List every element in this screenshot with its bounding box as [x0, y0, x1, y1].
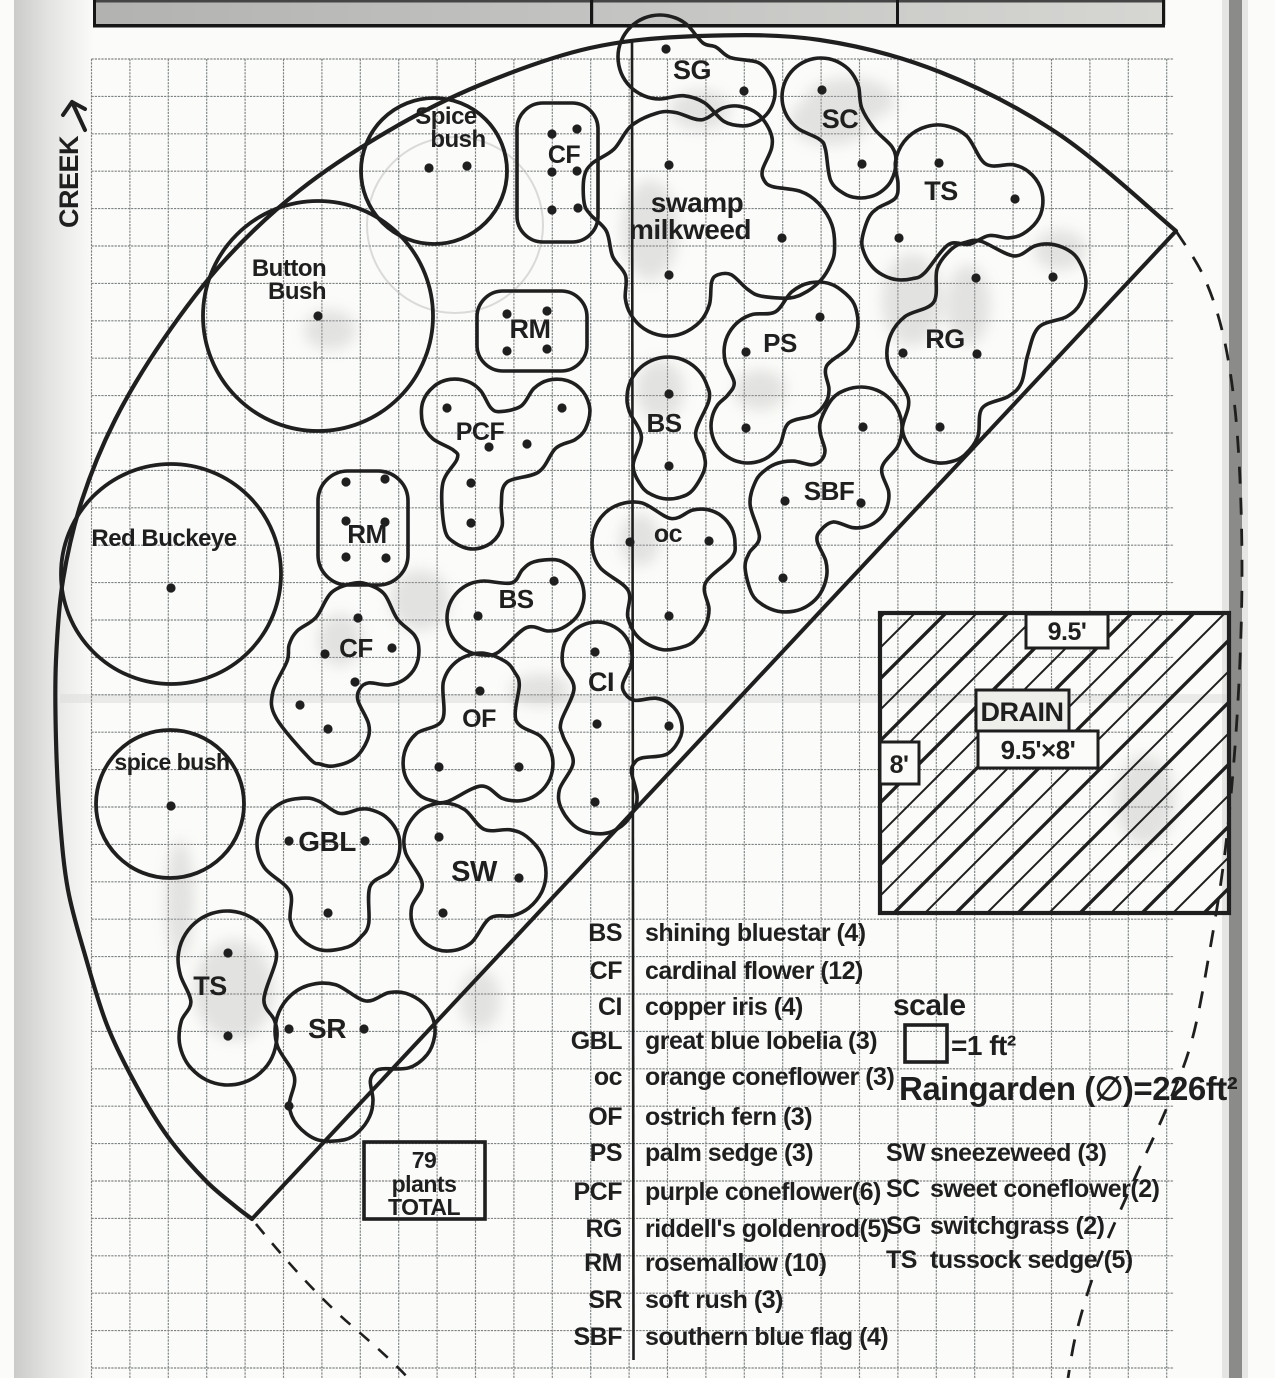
svg-text:BS: BS [588, 919, 622, 947]
svg-text:8': 8' [890, 751, 909, 779]
svg-text:BS: BS [498, 584, 533, 614]
svg-text:OF: OF [462, 705, 496, 733]
svg-text:CF: CF [590, 957, 623, 985]
svg-text:GBL: GBL [298, 826, 356, 857]
svg-text:southern blue flag (4): southern blue flag (4) [645, 1323, 888, 1351]
svg-text:DRAIN: DRAIN [981, 697, 1064, 727]
svg-text:SW: SW [451, 856, 498, 888]
svg-text:79: 79 [412, 1147, 437, 1173]
svg-text:SW: SW [886, 1139, 926, 1167]
svg-text:cardinal flower (12): cardinal flower (12) [645, 957, 863, 985]
svg-text:Bush: Bush [268, 278, 326, 305]
svg-text:soft rush (3): soft rush (3) [645, 1286, 783, 1314]
svg-text:SBF: SBF [804, 476, 855, 506]
svg-text:PCF: PCF [456, 418, 505, 446]
svg-text:tussock sedge (5): tussock sedge (5) [930, 1246, 1133, 1274]
svg-text:TOTAL: TOTAL [388, 1194, 460, 1220]
svg-text:rosemallow (10): rosemallow (10) [645, 1249, 827, 1277]
svg-text:RG: RG [586, 1215, 623, 1243]
svg-text:RM: RM [347, 519, 386, 549]
svg-text:SG: SG [886, 1212, 921, 1240]
svg-text:SBF: SBF [574, 1323, 623, 1351]
svg-text:oc: oc [594, 1063, 623, 1091]
svg-text:milkweed: milkweed [629, 214, 751, 245]
svg-text:PS: PS [590, 1139, 622, 1167]
svg-text:purple coneflower(6): purple coneflower(6) [645, 1178, 881, 1206]
svg-text:Raingarden (∅)=226ft²: Raingarden (∅)=226ft² [899, 1070, 1238, 1107]
svg-text:SR: SR [308, 1013, 346, 1044]
svg-text:riddell's goldenrod(5): riddell's goldenrod(5) [645, 1215, 889, 1243]
svg-text:9.5': 9.5' [1048, 618, 1087, 646]
svg-text:BS: BS [646, 408, 681, 438]
svg-text:SC: SC [822, 104, 859, 134]
svg-text:SR: SR [588, 1286, 622, 1314]
svg-text:palm sedge (3): palm sedge (3) [645, 1139, 813, 1167]
svg-text:RM: RM [584, 1249, 622, 1277]
svg-text:TS: TS [193, 971, 227, 1001]
svg-text:=1 ft²: =1 ft² [951, 1030, 1016, 1061]
svg-text:scale: scale [893, 989, 966, 1022]
svg-text:RM: RM [510, 314, 551, 344]
svg-text:sneezeweed (3): sneezeweed (3) [930, 1139, 1107, 1167]
svg-text:shining bluestar (4): shining bluestar (4) [645, 919, 866, 947]
svg-text:Red Buckeye: Red Buckeye [91, 525, 236, 552]
svg-text:TS: TS [886, 1246, 917, 1274]
svg-text:TS: TS [924, 176, 958, 206]
svg-text:CF: CF [548, 141, 581, 169]
svg-text:CREEK: CREEK [54, 135, 84, 228]
svg-text:PS: PS [763, 328, 797, 358]
svg-text:copper iris (4): copper iris (4) [645, 993, 803, 1021]
svg-text:great blue lobelia (3): great blue lobelia (3) [645, 1027, 877, 1055]
svg-text:oc: oc [654, 520, 683, 548]
svg-text:SC: SC [886, 1175, 920, 1203]
svg-text:CI: CI [598, 993, 622, 1021]
svg-text:switchgrass (2): switchgrass (2) [930, 1212, 1105, 1240]
svg-text:RG: RG [925, 324, 965, 354]
svg-text:SG: SG [673, 55, 711, 85]
svg-text:CF: CF [339, 633, 373, 663]
svg-text:spice bush: spice bush [114, 749, 229, 775]
svg-text:PCF: PCF [574, 1178, 623, 1206]
svg-text:9.5'×8': 9.5'×8' [1001, 735, 1076, 765]
svg-text:GBL: GBL [571, 1027, 623, 1055]
svg-text:orange coneflower (3): orange coneflower (3) [645, 1063, 894, 1091]
svg-text:ostrich fern (3): ostrich fern (3) [645, 1103, 812, 1131]
svg-text:bush: bush [430, 126, 485, 153]
svg-text:CI: CI [588, 667, 614, 697]
svg-text:OF: OF [588, 1103, 622, 1131]
svg-text:sweet coneflower(2): sweet coneflower(2) [930, 1175, 1160, 1203]
